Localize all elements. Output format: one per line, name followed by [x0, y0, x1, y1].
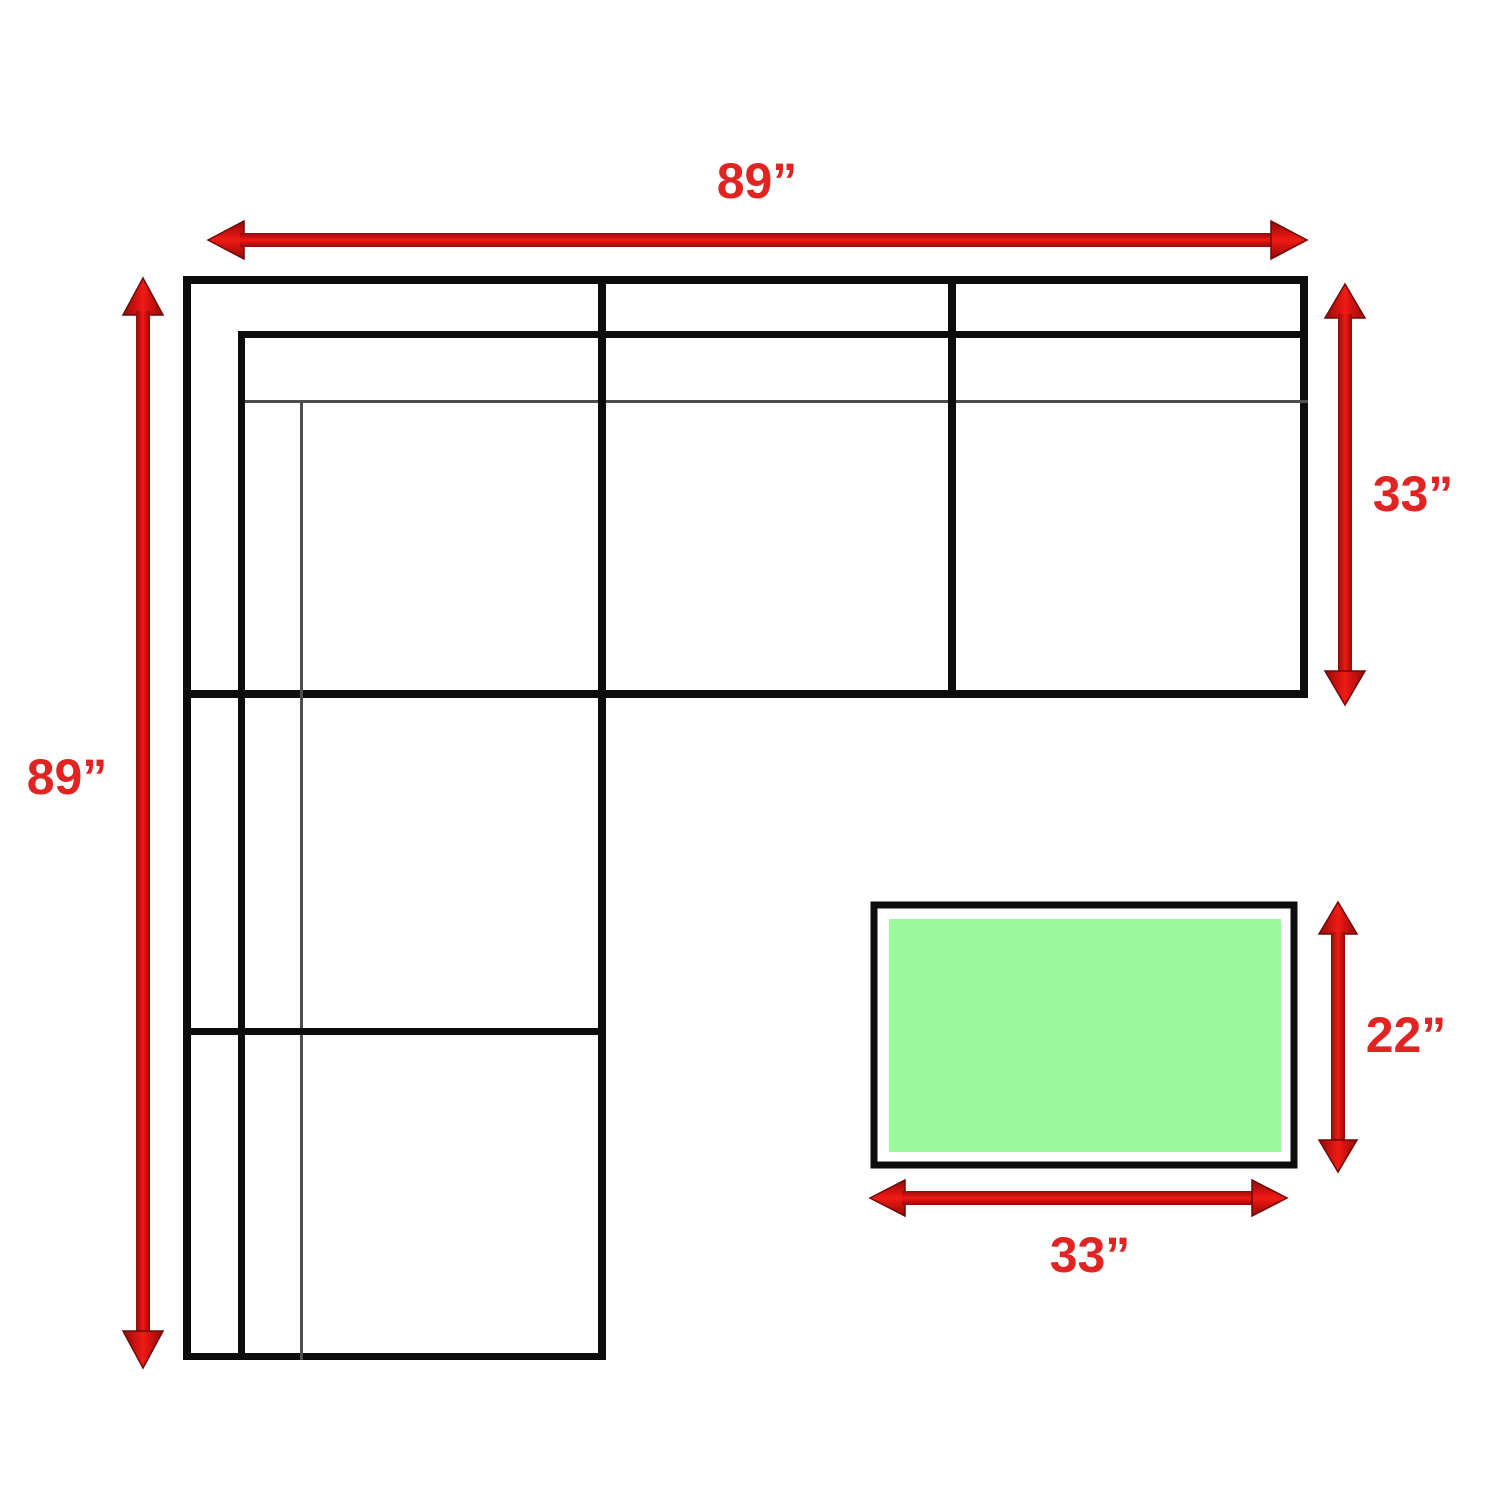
sofa-seat-divider-left-arm	[183, 1028, 606, 1035]
sectional-sofa-floorplan: 89” 89” 33” 22” 33”	[0, 0, 1500, 1500]
arrow-shaft	[902, 1191, 1254, 1205]
sofa-cushion-line-vertical	[300, 400, 303, 1360]
sofa-seat-divider-corner	[598, 276, 606, 1360]
dimension-arrow-ottoman-depth	[1319, 902, 1357, 1172]
sofa-backrest-line-vertical	[238, 331, 245, 1360]
sofa-section-depth-label: 33”	[1373, 466, 1454, 522]
arrow-shaft	[1331, 932, 1345, 1140]
ottoman	[874, 905, 1294, 1165]
arrow-shaft	[240, 233, 1274, 247]
dimension-arrow-ottoman-width	[870, 1180, 1287, 1216]
arrow-left-head-icon	[870, 1180, 905, 1216]
ottoman-width-label: 33”	[1050, 1227, 1131, 1283]
arrow-down-head-icon	[1319, 1140, 1357, 1172]
arrow-up-head-icon	[1325, 284, 1365, 318]
sofa-outer-top-edge	[183, 276, 1308, 284]
sofa-outer-right-edge	[1300, 276, 1308, 697]
arrow-right-head-icon	[1252, 1180, 1287, 1216]
dimension-arrow-sofa-section-depth	[1325, 284, 1365, 705]
arrow-left-head-icon	[208, 221, 244, 259]
sofa-depth-left-label: 89”	[27, 749, 108, 805]
arrow-shaft	[136, 311, 150, 1333]
dimension-arrow-sofa-width	[208, 221, 1307, 259]
sofa-outer-left-edge	[183, 276, 191, 1360]
ottoman-cushion	[889, 919, 1281, 1152]
sofa-top-arm-front-edge	[183, 690, 1308, 698]
arrow-right-head-icon	[1271, 221, 1307, 259]
sofa-cushion-line-horizontal	[245, 400, 1308, 403]
furniture-dimension-diagram: 89” 89” 33” 22” 33”	[0, 0, 1500, 1500]
sofa-width-label: 89”	[717, 153, 798, 209]
arrow-down-head-icon	[123, 1331, 163, 1368]
sofa-backrest-line-horizontal	[238, 331, 1308, 338]
dimension-arrow-sofa-depth-left	[123, 278, 163, 1368]
sofa-outer-bottom-edge	[183, 1353, 606, 1360]
arrow-up-head-icon	[123, 278, 163, 315]
arrow-down-head-icon	[1325, 671, 1365, 705]
arrow-up-head-icon	[1319, 902, 1357, 934]
arrow-shaft	[1338, 314, 1352, 672]
ottoman-depth-label: 22”	[1366, 1007, 1447, 1063]
sofa-seat-divider-right	[948, 276, 956, 697]
